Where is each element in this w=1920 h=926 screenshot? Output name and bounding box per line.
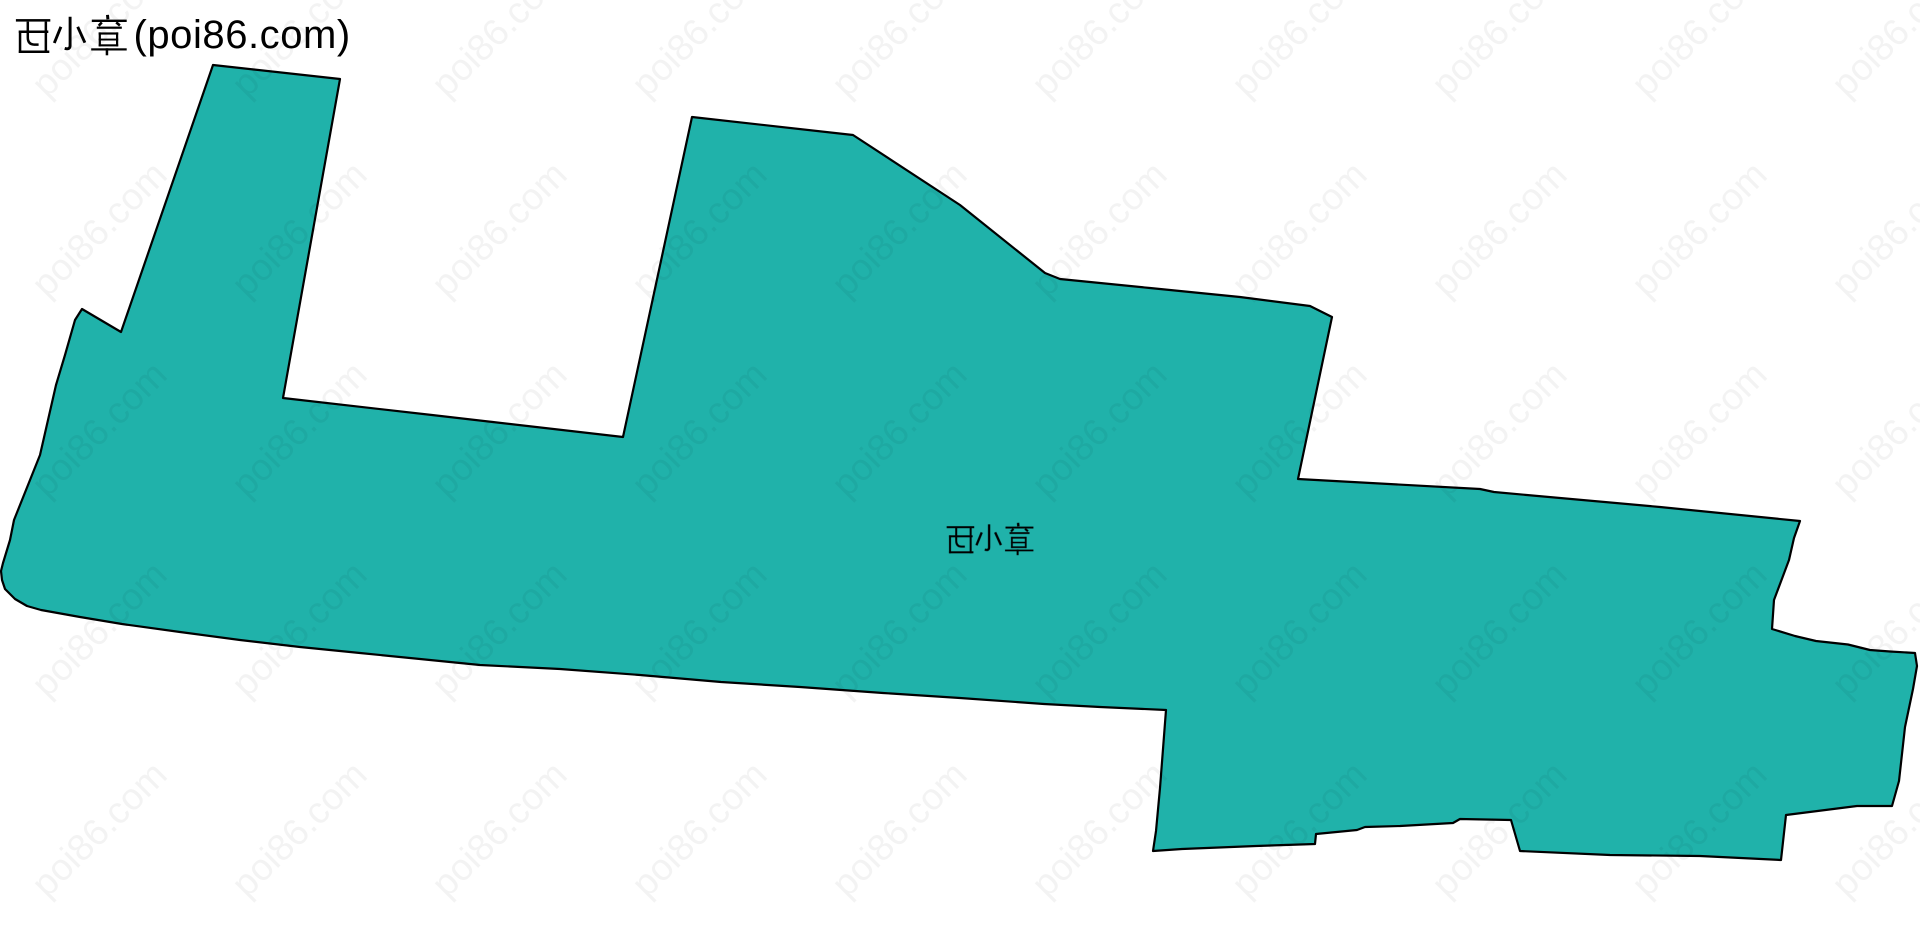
svg-text:(poi86.com): (poi86.com) (134, 13, 351, 57)
